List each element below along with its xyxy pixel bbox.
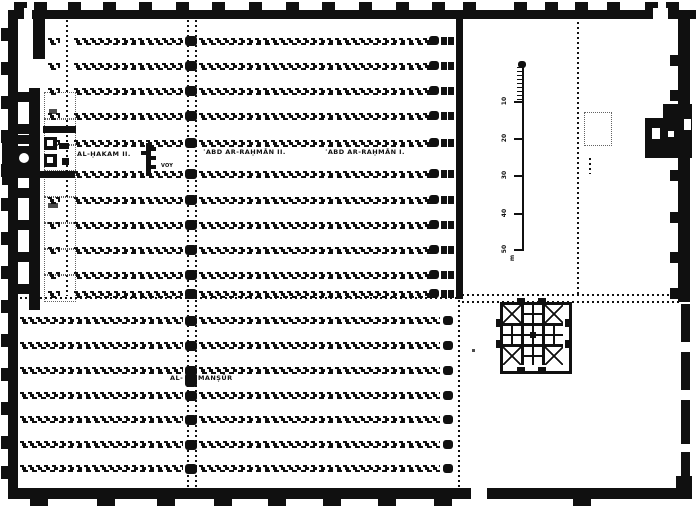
- label-al-hakam-ii: AL-ḤAKAM II.: [77, 150, 131, 158]
- label-al-mansur-prefix: AL-: [170, 374, 183, 382]
- scale-tick-minor: [517, 95, 522, 96]
- label-tiny-annotation: VOY: [161, 163, 173, 169]
- label-abd-ar-rahman-i: ʿABD AR-RAḤMĀN I.: [325, 148, 405, 156]
- scale-tick-label: 30: [497, 168, 511, 182]
- scale-tick-minor: [517, 87, 522, 88]
- scale-tick-label: 40: [497, 206, 511, 220]
- scale-line: [522, 64, 524, 251]
- scale-tick-minor: [517, 83, 522, 84]
- scale-tick-minor: [517, 91, 522, 92]
- scale-tick-minor: [517, 79, 522, 80]
- mosque-floor-plan: 1020304050m AL-ḤAKAM II. ʿABD AR-RAḤMĀN …: [0, 0, 700, 511]
- label-abd-ar-rahman-ii: ʿABD AR-RAḤMĀN II.: [203, 148, 286, 156]
- scale-bar: 1020304050m: [0, 0, 700, 511]
- label-al-mansur-suffix: MANṢŪR: [198, 374, 233, 382]
- scale-tick-major: [514, 175, 522, 177]
- scale-tick-minor: [517, 99, 522, 100]
- scale-tick-label: 20: [497, 131, 511, 145]
- scale-tick-minor: [517, 67, 522, 68]
- scale-tick-minor: [517, 75, 522, 76]
- scale-tick-major: [514, 213, 522, 215]
- scale-tick-major: [514, 101, 522, 103]
- scale-unit-label: m: [505, 251, 519, 265]
- scale-tick-label: 10: [497, 94, 511, 108]
- scale-tick-minor: [517, 71, 522, 72]
- scale-tick-major: [514, 138, 522, 140]
